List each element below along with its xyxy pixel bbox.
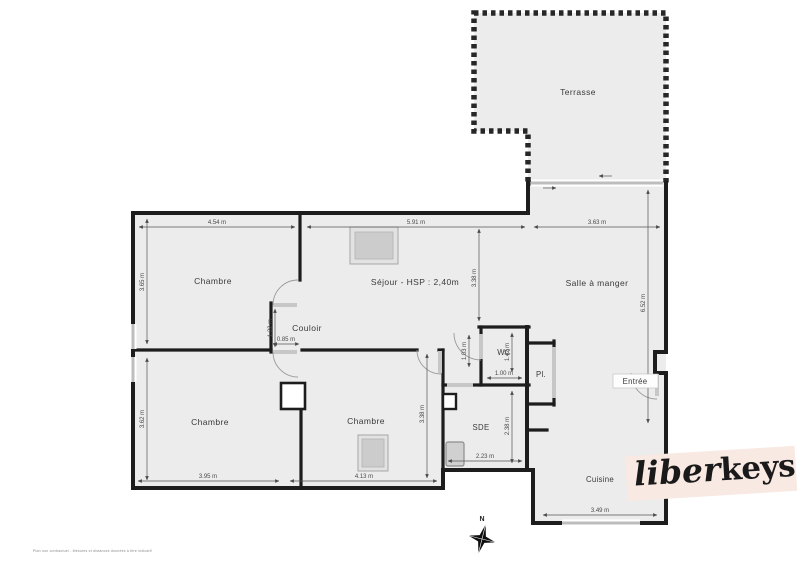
logo-keys-text: keys	[719, 451, 795, 487]
label-sde: SDE	[473, 423, 490, 432]
dim-chambre3-h: 3.38 m	[420, 405, 426, 423]
label-chambre2: Chambre	[191, 417, 229, 427]
apartment-floor	[133, 183, 666, 523]
label-chambre3: Chambre	[347, 416, 385, 426]
label-entree: Entrée	[623, 377, 648, 386]
compass-icon: N	[465, 516, 499, 557]
label-sejour: Séjour - HSP : 2,40m	[371, 277, 459, 287]
label-terrasse: Terrasse	[560, 87, 596, 97]
dim-sde-h: 2.38 m	[505, 417, 511, 435]
footer-disclaimer: Plan non contractuel - Mesures et distan…	[33, 549, 152, 553]
compass-north-label: N	[479, 516, 484, 523]
dim-salle-w: 3.63 m	[588, 220, 606, 226]
dim-wc-w: 1.00 m	[495, 371, 513, 377]
dim-sde-w: 2.23 m	[476, 454, 494, 460]
label-salle-a-manger: Salle à manger	[566, 278, 629, 288]
dim-wc-entry: 1.03 m	[462, 342, 468, 360]
closet-duct-box	[281, 383, 305, 409]
dim-couloir-w: 0.85 m	[277, 337, 295, 343]
dim-chambre2-w: 3.95 m	[199, 474, 217, 480]
dim-sejour-h: 3.38 m	[472, 269, 478, 287]
label-chambre1: Chambre	[194, 276, 232, 286]
dim-chambre1-h: 3.65 m	[140, 273, 146, 291]
dim-chambre2-h: 3.62 m	[140, 410, 146, 428]
dim-couloir-h: 1.22 m	[268, 319, 274, 337]
terrasse-floor	[474, 13, 666, 183]
label-wc: WC	[497, 348, 511, 357]
dim-chambre3-w: 4.13 m	[355, 474, 373, 480]
label-couloir: Couloir	[292, 323, 322, 333]
duct-box	[443, 394, 456, 409]
dim-chambre1-w: 4.54 m	[208, 220, 226, 226]
sde-shower	[446, 442, 464, 466]
label-placard: Pl.	[536, 370, 546, 379]
dim-salle-h: 6.52 m	[641, 294, 647, 312]
logo-liber-text: liber	[633, 452, 721, 490]
dim-cuisine-w: 3.49 m	[591, 508, 609, 514]
label-cuisine: Cuisine	[586, 475, 614, 484]
dim-sejour-w: 5.91 m	[407, 220, 425, 226]
